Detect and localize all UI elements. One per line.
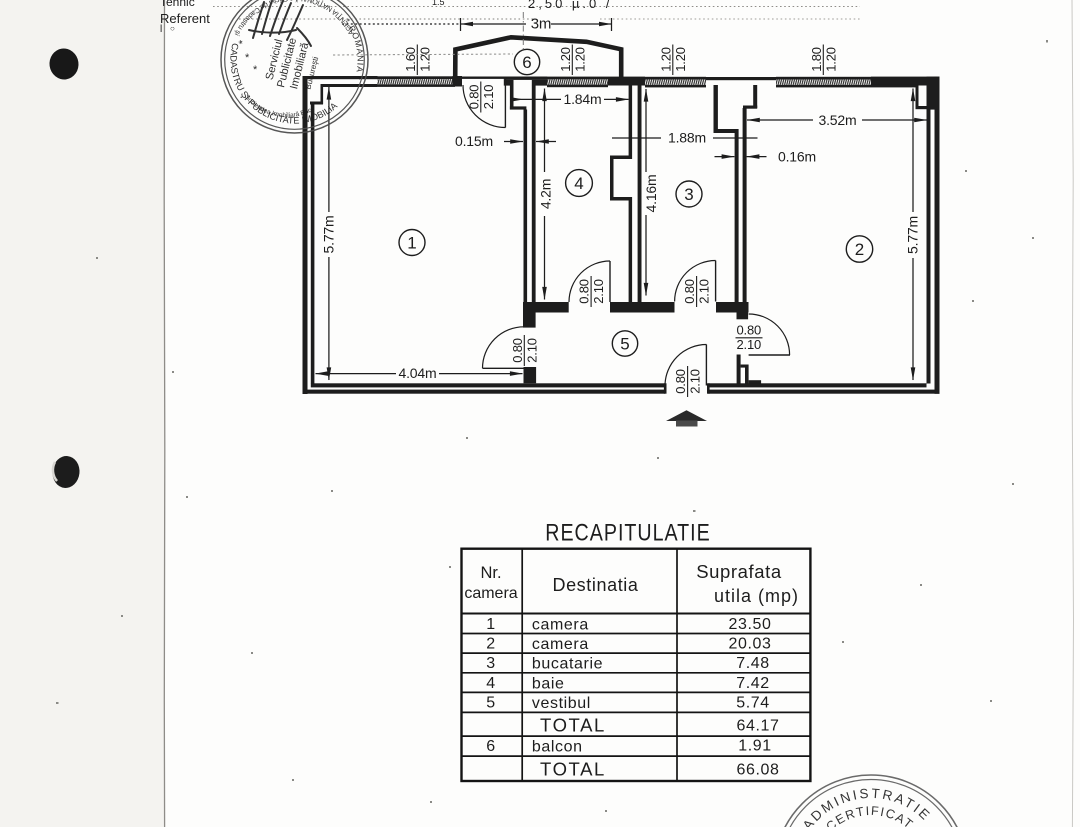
svg-text:camera: camera bbox=[464, 585, 517, 602]
svg-text:6: 6 bbox=[486, 738, 496, 755]
svg-text:1.88m: 1.88m bbox=[668, 130, 706, 146]
svg-text:1.60: 1.60 bbox=[403, 47, 418, 72]
svg-text:2: 2 bbox=[855, 240, 864, 259]
svg-text:3: 3 bbox=[486, 655, 496, 672]
svg-text:0.15m: 0.15m bbox=[455, 133, 493, 149]
svg-text:1.80: 1.80 bbox=[809, 47, 824, 72]
svg-text:2: 2 bbox=[486, 636, 496, 653]
svg-text:4: 4 bbox=[574, 174, 583, 193]
svg-text:7.48: 7.48 bbox=[736, 655, 770, 672]
svg-text:1.20: 1.20 bbox=[658, 47, 673, 72]
svg-text:RECAPITULATIE: RECAPITULATIE bbox=[545, 519, 710, 546]
svg-text:baie: baie bbox=[532, 675, 565, 692]
svg-text:2.10: 2.10 bbox=[524, 338, 539, 363]
svg-text:0.80: 0.80 bbox=[673, 369, 688, 394]
svg-text:*: * bbox=[245, 52, 250, 64]
svg-text:1: 1 bbox=[486, 616, 496, 633]
svg-text:Nr.: Nr. bbox=[480, 564, 501, 582]
svg-text:utila (mp): utila (mp) bbox=[714, 586, 799, 606]
svg-text:1.20: 1.20 bbox=[572, 47, 587, 72]
svg-text:5: 5 bbox=[620, 335, 629, 354]
svg-text:5: 5 bbox=[486, 695, 496, 712]
svg-text:vestibul: vestibul bbox=[532, 695, 591, 712]
svg-text:3: 3 bbox=[684, 185, 693, 204]
svg-text:2.10: 2.10 bbox=[688, 369, 703, 394]
svg-text:1.84m: 1.84m bbox=[564, 91, 602, 107]
svg-text:64.17: 64.17 bbox=[736, 718, 779, 735]
svg-text:bucatarie: bucatarie bbox=[532, 656, 603, 673]
svg-text:2.10: 2.10 bbox=[481, 85, 496, 110]
svg-text:4.04m: 4.04m bbox=[399, 365, 437, 381]
svg-text:camera: camera bbox=[532, 617, 589, 634]
svg-text:3.52m: 3.52m bbox=[819, 112, 857, 128]
svg-text:66.08: 66.08 bbox=[736, 762, 779, 779]
svg-text:2.10: 2.10 bbox=[591, 279, 606, 304]
svg-text:0.80: 0.80 bbox=[577, 279, 592, 304]
svg-text:balcon: balcon bbox=[532, 739, 583, 756]
svg-text:7.42: 7.42 bbox=[736, 675, 770, 692]
svg-text:TOTAL: TOTAL bbox=[540, 759, 606, 780]
svg-text:1.91: 1.91 bbox=[738, 738, 772, 755]
svg-text:0.80: 0.80 bbox=[682, 279, 697, 304]
svg-text:2.10: 2.10 bbox=[697, 279, 712, 304]
svg-text:TOTAL: TOTAL bbox=[540, 715, 606, 736]
svg-text:20.03: 20.03 bbox=[728, 636, 771, 653]
svg-text:1: 1 bbox=[407, 234, 416, 253]
svg-text:5.77m: 5.77m bbox=[321, 216, 337, 254]
svg-text:4: 4 bbox=[486, 675, 496, 692]
svg-text:4.2m: 4.2m bbox=[538, 179, 554, 209]
svg-text:0.80: 0.80 bbox=[510, 338, 525, 363]
svg-text:AGENŢIA NAŢIONALĂ * Oficiul de: AGENŢIA NAŢIONALĂ * Oficiul de Cadastru … bbox=[233, 0, 356, 38]
svg-text:camera: camera bbox=[532, 636, 589, 653]
svg-text:6: 6 bbox=[522, 53, 531, 72]
svg-text:0.16m: 0.16m bbox=[778, 149, 816, 165]
svg-text:3m: 3m bbox=[531, 16, 551, 33]
svg-text:4.16m: 4.16m bbox=[643, 175, 659, 213]
svg-text:2.10: 2.10 bbox=[737, 337, 762, 352]
svg-text:1.20: 1.20 bbox=[417, 47, 432, 72]
svg-text:5.74: 5.74 bbox=[736, 695, 770, 712]
svg-text:Suprafata: Suprafata bbox=[696, 561, 782, 582]
svg-text:0.80: 0.80 bbox=[466, 85, 481, 110]
svg-text:1.20: 1.20 bbox=[558, 47, 573, 72]
svg-text:5.77m: 5.77m bbox=[905, 216, 921, 254]
svg-text:Destinatia: Destinatia bbox=[552, 575, 638, 595]
svg-text:0.80: 0.80 bbox=[737, 323, 762, 338]
svg-text:* ROMANIA *: * ROMANIA * bbox=[342, 16, 365, 81]
svg-text:1.20: 1.20 bbox=[673, 47, 688, 72]
svg-text:1.20: 1.20 bbox=[823, 47, 838, 72]
svg-text:*: * bbox=[253, 64, 258, 76]
svg-text:23.50: 23.50 bbox=[728, 616, 771, 633]
